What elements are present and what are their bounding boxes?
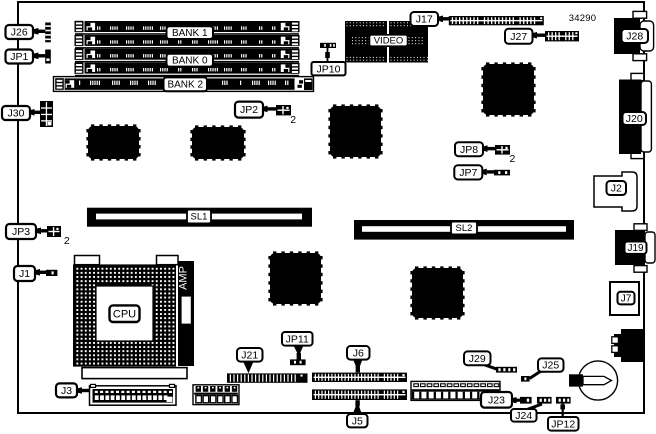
svg-text:J1: J1 xyxy=(19,268,30,280)
svg-text:J24: J24 xyxy=(515,410,532,422)
svg-text:JP3: JP3 xyxy=(12,226,30,238)
svg-text:J23: J23 xyxy=(488,394,505,406)
svg-text:J17: J17 xyxy=(416,14,433,26)
svg-text:JP1: JP1 xyxy=(10,51,28,63)
svg-text:J7: J7 xyxy=(621,294,632,305)
svg-text:J25: J25 xyxy=(542,360,559,372)
svg-text:BANK 2: BANK 2 xyxy=(167,80,203,91)
svg-text:JP11: JP11 xyxy=(286,333,309,345)
svg-text:J3: J3 xyxy=(61,385,72,397)
svg-text:J29: J29 xyxy=(469,353,486,365)
svg-text:2: 2 xyxy=(290,114,296,126)
svg-text:BANK 0: BANK 0 xyxy=(172,56,208,67)
svg-text:J26: J26 xyxy=(11,27,28,39)
svg-text:JP10: JP10 xyxy=(317,63,341,75)
svg-text:J27: J27 xyxy=(510,31,527,43)
svg-text:J21: J21 xyxy=(241,349,258,361)
svg-text:2: 2 xyxy=(509,153,515,165)
svg-text:J2: J2 xyxy=(611,183,622,195)
svg-text:JP12: JP12 xyxy=(551,418,575,430)
svg-text:VIDEO: VIDEO xyxy=(374,36,404,47)
svg-text:JP2: JP2 xyxy=(240,104,258,116)
svg-text:J19: J19 xyxy=(627,243,644,254)
svg-text:AMP: AMP xyxy=(178,266,190,290)
svg-text:CPU: CPU xyxy=(113,308,136,320)
svg-text:BANK 1: BANK 1 xyxy=(172,28,208,39)
svg-text:J6: J6 xyxy=(353,347,364,359)
svg-text:J20: J20 xyxy=(626,113,643,125)
svg-text:34290: 34290 xyxy=(569,13,596,24)
svg-text:J5: J5 xyxy=(352,415,363,427)
svg-text:SL1: SL1 xyxy=(191,212,208,223)
svg-text:SL2: SL2 xyxy=(456,223,473,234)
svg-text:JP7: JP7 xyxy=(459,167,477,179)
svg-text:J30: J30 xyxy=(8,108,25,120)
svg-text:J28: J28 xyxy=(626,31,643,43)
svg-text:2: 2 xyxy=(64,235,70,247)
svg-text:JP8: JP8 xyxy=(460,144,478,156)
